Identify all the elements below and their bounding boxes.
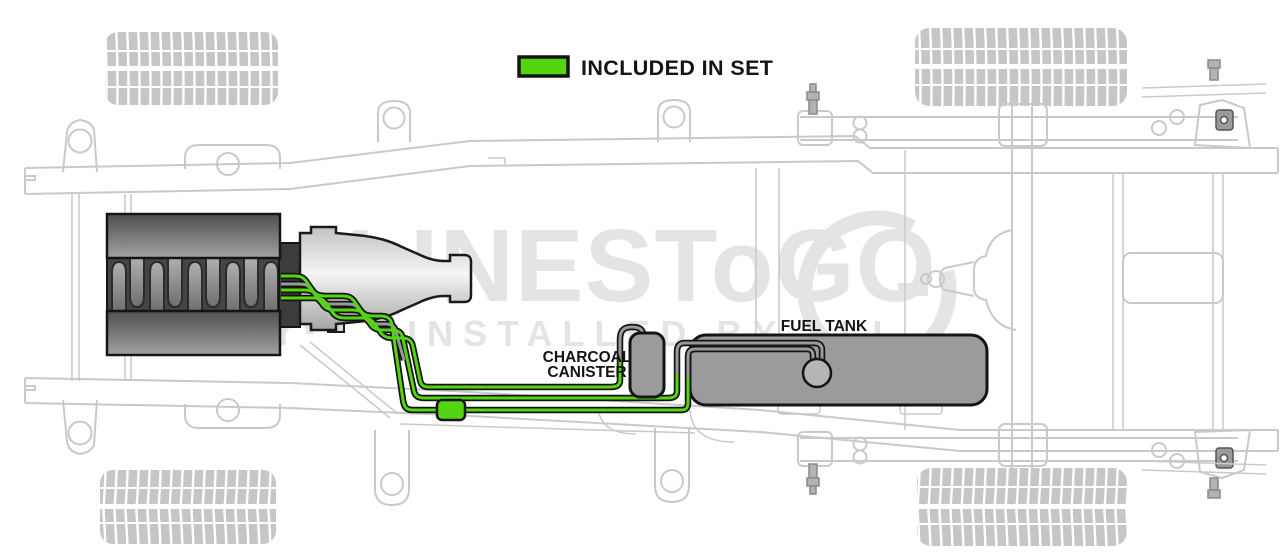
tire-front-right (915, 28, 1127, 106)
rear-crossmembers (1113, 173, 1223, 430)
watermark-logo-bar (898, 283, 928, 296)
engine-valve-cover-bottom (107, 311, 280, 355)
fuel-pump-sender (803, 359, 831, 387)
fuel-filter (437, 400, 465, 420)
diagram-page: LINESToGO INSTALLED BY ALL (0, 0, 1280, 558)
charcoal-canister (630, 333, 664, 397)
fuel-line-diagram: LINESToGO INSTALLED BY ALL (0, 0, 1280, 558)
tire-rear-right (917, 468, 1127, 546)
legend-label: INCLUDED IN SET (581, 56, 773, 80)
legend: INCLUDED IN SET (519, 56, 773, 80)
engine-cylinders (107, 257, 298, 312)
legend-swatch (519, 57, 568, 76)
tire-front-left (105, 32, 278, 105)
engine (107, 214, 300, 355)
fuel-tank-label: FUEL TANK (781, 318, 868, 335)
tire-rear-left (100, 470, 276, 544)
engine-valve-cover-top (107, 214, 280, 258)
charcoal-canister-label-line2: CANISTER (547, 364, 626, 381)
